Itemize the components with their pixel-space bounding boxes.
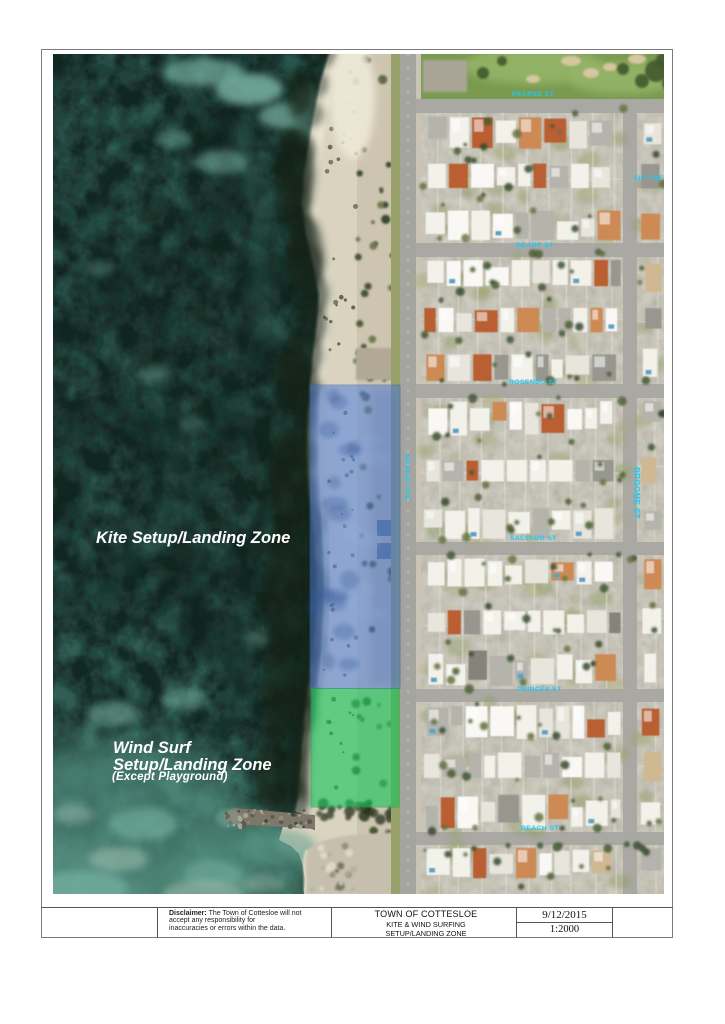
svg-text:DEANE ST: DEANE ST <box>516 242 554 249</box>
svg-text:MARINE PDE: MARINE PDE <box>403 454 410 501</box>
svg-text:BEACH ST: BEACH ST <box>521 825 559 832</box>
svg-text:BROOME ST: BROOME ST <box>632 467 641 519</box>
svg-text:FIG TREE: FIG TREE <box>634 175 664 182</box>
svg-text:SALVADO ST: SALVADO ST <box>510 535 557 542</box>
svg-text:PRINCES ST: PRINCES ST <box>517 686 562 693</box>
svg-text:PEARSE ST: PEARSE ST <box>512 91 555 98</box>
svg-text:ROSENDO ST: ROSENDO ST <box>509 379 558 386</box>
